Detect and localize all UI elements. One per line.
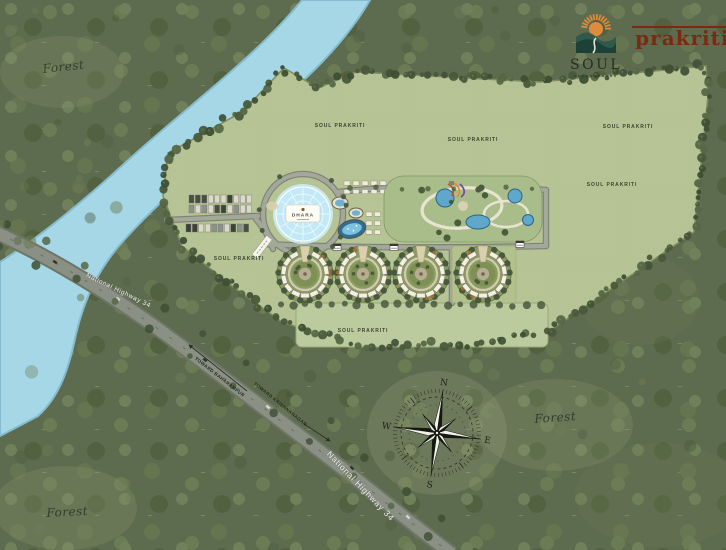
area-label: SOUL PRAKRITI <box>577 182 647 188</box>
area-label: SOUL PRAKRITI <box>305 123 375 129</box>
forest-label-bottom-left: Forest <box>46 504 88 520</box>
map-canvas: DHARA <box>0 0 726 550</box>
water-park <box>384 176 542 242</box>
area-label: SOUL PRAKRITI <box>438 137 508 143</box>
soul-logo-text: SOUL <box>570 57 622 73</box>
compass-east: E <box>483 436 491 447</box>
brand-header: SOUL prakriti <box>570 10 720 77</box>
area-label: SOUL PRAKRITI <box>593 124 663 130</box>
area-label: SOUL PRAKRITI <box>328 328 398 334</box>
site-plan-map: DHARA <box>0 0 726 550</box>
soul-tagline <box>574 75 618 77</box>
prakriti-wordmark: prakriti <box>632 26 726 49</box>
area-label: SOUL PRAKRITI <box>204 256 274 262</box>
dome-label: DHARA <box>292 213 314 219</box>
soul-logo-icon <box>573 10 619 56</box>
forest-label-mid-right: Forest <box>534 409 577 426</box>
soul-logo: SOUL <box>570 10 622 77</box>
compass-north: N <box>439 378 448 389</box>
sports-field <box>296 303 548 347</box>
